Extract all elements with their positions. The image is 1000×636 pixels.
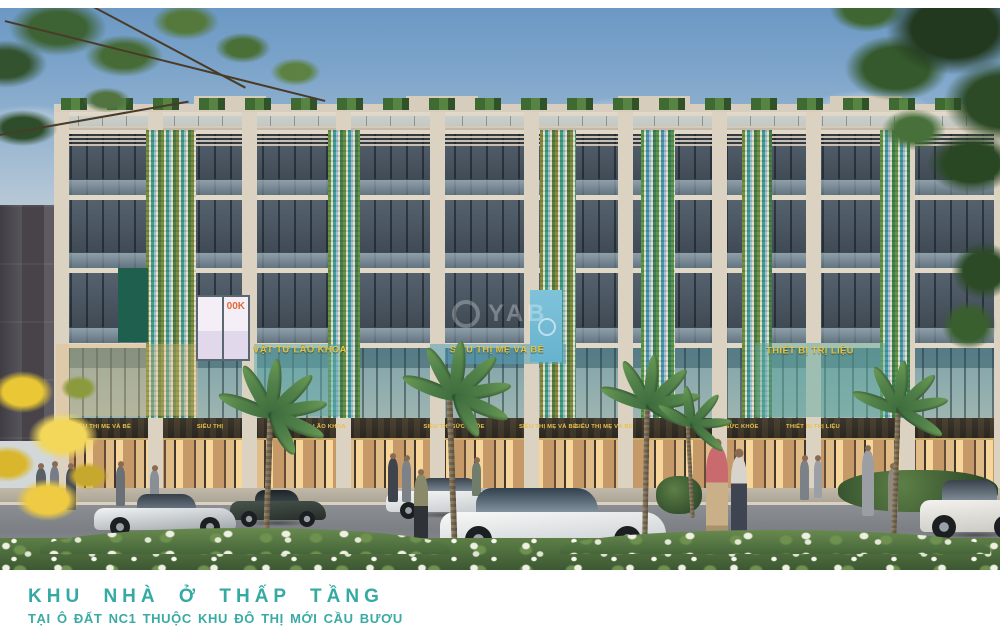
pedestrian [402,460,411,502]
watermark: YAB [452,300,548,328]
project-title: KHU NHÀ Ở THẤP TẦNG [28,586,403,608]
green-feature-panel [118,268,148,342]
roof-garden [54,98,1000,110]
storefront-sign-thiet-bi-tri-lieu: THIẾT BỊ TRỊ LIỆU [751,346,870,356]
pedestrian [66,468,76,510]
awning-sign: SIÊU THỊ MẸ VÀ BÉ [569,423,639,429]
lit-storefront-glass [56,344,198,416]
car-wheel [932,515,956,539]
project-subtitle: TẠI Ô ĐẤT NC1 THUỘC KHU ĐÔ THỊ MỚI CẦU B… [28,611,403,626]
car-cabin [476,488,598,514]
caption-block: KHU NHÀ Ở THẤP TẦNG TẠI Ô ĐẤT NC1 THUỘC … [28,586,403,626]
architectural-render: 00K VẬT TƯ LÃO KHOA SIÊU THỊ MẸ VÀ BÉ TH… [0,8,1000,570]
watermark-ring-icon [452,300,480,328]
awning-sign: THIẾT BỊ TRỊ LIỆU [778,423,848,429]
real-estate-flyer: 00K VẬT TƯ LÃO KHOA SIÊU THỊ MẸ VÀ BÉ TH… [0,0,1000,636]
awning-sign: SIÊU THỊ [175,423,245,429]
storefront-sign-vat-tu-lao-khoa: VẬT TƯ LÃO KHOA [241,345,360,355]
awning-sign: SIÊU THỊ MẸ VÀ BÉ [67,423,137,429]
watermark-text: YAB [488,300,548,328]
pedestrian [814,460,822,498]
car-wheel [299,511,315,527]
promo-poster-text: 00K [227,301,245,312]
louver-accent-column [540,130,576,418]
pedestrian [50,466,59,508]
pedestrian [36,468,46,508]
white-luxury-car [920,480,1000,536]
dark-coupe [230,490,326,524]
pedestrian [800,460,809,500]
pedestrian-walking [862,450,874,516]
shophouse-facade: 00K VẬT TƯ LÃO KHOA SIÊU THỊ MẸ VÀ BÉ TH… [54,104,1000,490]
car-wheel [241,511,257,527]
car-cabin [942,480,997,502]
pedestrian [388,458,398,502]
